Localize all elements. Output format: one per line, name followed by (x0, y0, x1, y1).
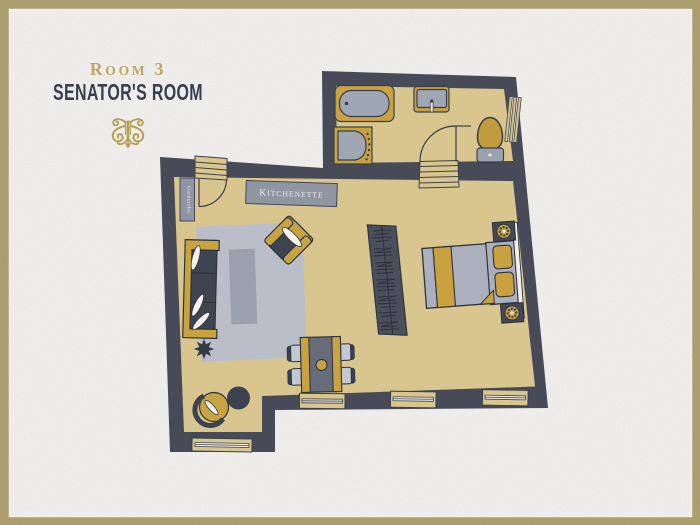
svg-text:SENATOR'S ROOM: SENATOR'S ROOM (53, 80, 203, 106)
svg-text:Garderobe: Garderobe (186, 186, 192, 213)
